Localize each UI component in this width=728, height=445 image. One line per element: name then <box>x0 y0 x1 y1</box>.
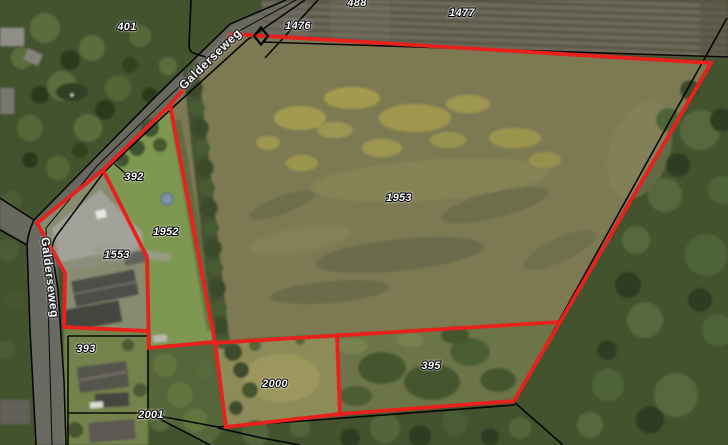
parcel-label-1477: 1477 <box>449 7 475 19</box>
map-canvas: 401 488 1476 1477 392 1952 1553 1953 393… <box>0 0 728 445</box>
parcel-label-401: 401 <box>116 21 136 33</box>
parcel-label-1952: 1952 <box>153 226 179 238</box>
parcel-label-1553: 1553 <box>104 249 130 261</box>
aerial-cadastral-map[interactable]: 401 488 1476 1477 392 1952 1553 1953 393… <box>0 0 728 445</box>
parcel-label-395: 395 <box>421 360 441 372</box>
parcel-label-393: 393 <box>76 343 95 355</box>
parcel-label-1953: 1953 <box>386 192 412 204</box>
parcel-label-392: 392 <box>124 171 143 183</box>
parcel-label-2001: 2001 <box>137 409 164 421</box>
parcel-label-2000: 2000 <box>261 378 288 390</box>
parcel-label-1476: 1476 <box>285 20 311 32</box>
parcel-label-488: 488 <box>346 0 367 9</box>
